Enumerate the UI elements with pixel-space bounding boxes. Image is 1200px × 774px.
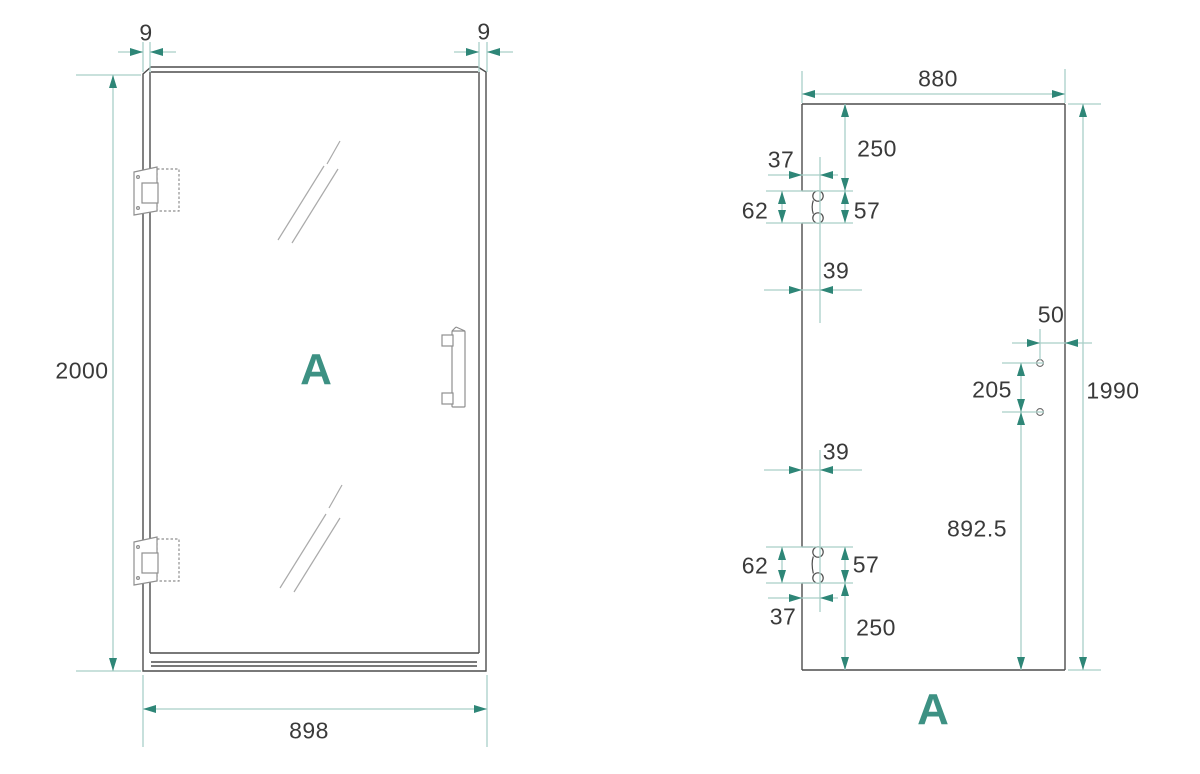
dim-glass-height-label: 1990 [1086, 378, 1139, 405]
dim-handle-from-bottom-label: 892.5 [947, 516, 1007, 543]
shower-door-technical-drawing [0, 0, 1200, 774]
hinge-top [134, 167, 179, 215]
dim-top-left-edge-label: 9 [139, 20, 152, 47]
dim-bottom-cutout-from-bottom-label: 250 [856, 615, 896, 642]
dim-bottom-cutout-hole-spacing-label: 57 [853, 552, 880, 579]
door-view-label: A [300, 345, 332, 395]
dim-top-right-edge-label: 9 [477, 19, 490, 46]
handle-holes [1037, 360, 1044, 416]
dim-handle-hole-spacing-label: 205 [972, 377, 1012, 404]
dimension-lines [76, 42, 1101, 747]
dim-top-cutout-offset-b-label: 39 [823, 258, 850, 285]
technical-drawing-canvas: 9 9 2000 898 A 880 250 37 62 57 39 50 20… [0, 0, 1200, 774]
hinge-bottom [134, 537, 179, 585]
glass-panel-outline [802, 104, 1065, 670]
dim-top-cutout-height-label: 62 [742, 198, 769, 225]
door-handle [442, 327, 465, 407]
dim-bottom-cutout-offset-a-label: 37 [770, 604, 797, 631]
dim-door-width-label: 898 [289, 718, 329, 745]
dim-top-cutout-offset-a-label: 37 [768, 147, 795, 174]
dim-top-cutout-hole-spacing-label: 57 [854, 198, 881, 225]
dim-top-cutout-from-top-label: 250 [857, 136, 897, 163]
dim-bottom-cutout-height-label: 62 [742, 553, 769, 580]
dimension-arrowheads [109, 48, 1087, 713]
dim-door-height-label: 2000 [55, 358, 108, 385]
dim-glass-width-label: 880 [918, 66, 958, 93]
panel-view-label: A [917, 685, 949, 735]
dim-bottom-cutout-offset-b-label: 39 [823, 439, 850, 466]
dim-handle-from-edge-label: 50 [1038, 302, 1065, 329]
